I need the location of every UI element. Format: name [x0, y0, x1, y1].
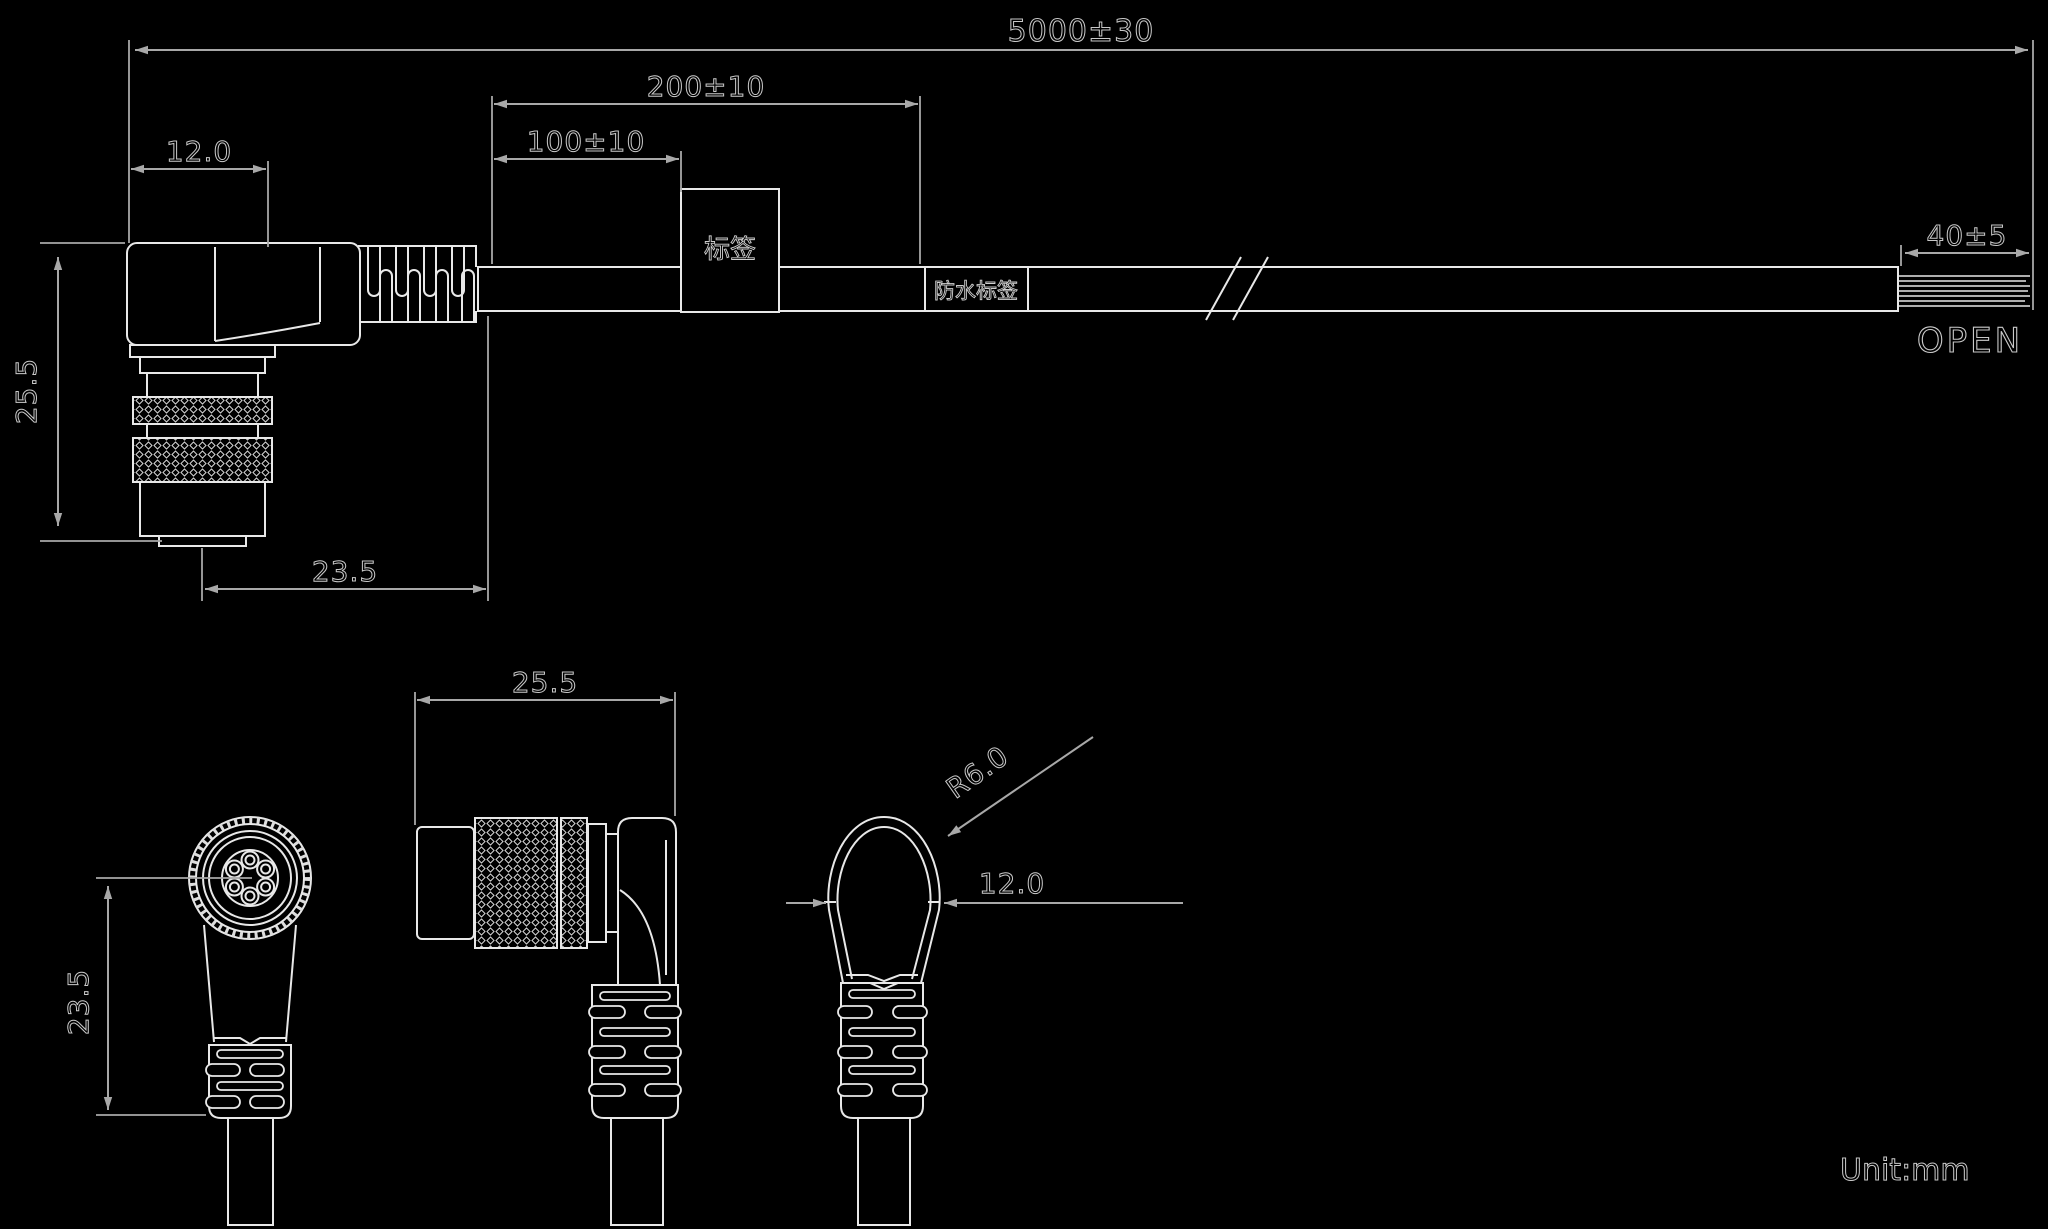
dimension-r6: R6.0 [940, 737, 1093, 836]
unit-note: Unit:mm [1840, 1153, 1970, 1188]
nut-flange [130, 345, 275, 357]
coupling-nut [130, 345, 275, 546]
nut-spacer [147, 424, 258, 438]
dim-12-top-text: 12.0 [166, 135, 232, 168]
nut-neck [147, 373, 258, 397]
knurl-band-lower [133, 438, 272, 482]
dimension-overall: 5000±30 [129, 14, 2033, 310]
dim-25-5-side-text: 25.5 [512, 666, 578, 699]
open-end-label: OPEN [1917, 321, 2023, 361]
rear-dome-view: R6.0 12.0 [786, 737, 1183, 1225]
dimension-25-5-side: 25.5 [415, 666, 675, 825]
dim-overall-text: 5000±30 [1008, 14, 1155, 49]
dimension-12-rear: 12.0 [786, 867, 1183, 903]
assembly-side-view: 标签 防水标签 5000±30 [10, 14, 2033, 601]
neck-ring [606, 834, 618, 932]
nose-cylinder [417, 827, 474, 939]
strain-relief-rear [838, 983, 927, 1118]
dome-inner [837, 827, 930, 979]
nut-collar [140, 357, 265, 373]
waterproof-label-text: 防水标签 [934, 279, 1018, 303]
thread-barrel [140, 482, 265, 536]
dome-outer [828, 817, 939, 983]
cable-front [228, 1118, 273, 1225]
dim-r6-text: R6.0 [940, 739, 1015, 805]
strain-relief-side-profile [589, 985, 681, 1118]
connector-housing [127, 243, 360, 345]
knurl-band-upper [133, 397, 272, 424]
dim-25-5-left-text: 25.5 [10, 358, 43, 424]
dimension-100: 100±10 [494, 125, 681, 192]
strain-relief-side [358, 246, 476, 322]
label-tag-text: 标签 [704, 235, 756, 265]
dim-23-5-top-text: 23.5 [312, 555, 378, 588]
dim-200-text: 200±10 [647, 70, 766, 103]
dimension-40: 40±5 [1901, 219, 2029, 266]
cable-rear [858, 1118, 910, 1225]
cable-side [611, 1118, 663, 1225]
cable-label-block: 标签 [681, 189, 779, 312]
knurl-band-a [475, 818, 557, 948]
step-ring [588, 824, 606, 942]
strain-relief-front [206, 1045, 291, 1118]
knurl-band-b [561, 818, 587, 948]
dim-40-text: 40±5 [1927, 219, 2008, 252]
body-seam-wave [214, 1038, 286, 1044]
dim-100-text: 100±10 [527, 125, 646, 158]
dim-12-rear-text: 12.0 [979, 867, 1045, 900]
front-face-view: 23.5 [62, 817, 311, 1225]
dimension-12-top: 12.0 [131, 135, 268, 247]
nut-tip [159, 536, 246, 546]
angle-body [618, 818, 676, 985]
dim-23-5-front-text: 23.5 [62, 969, 95, 1035]
technical-drawing-canvas: 标签 防水标签 5000±30 [0, 0, 2048, 1229]
side-profile-view: 25.5 [415, 666, 681, 1225]
stripped-wires [1898, 276, 2030, 306]
housing-body [127, 243, 360, 345]
